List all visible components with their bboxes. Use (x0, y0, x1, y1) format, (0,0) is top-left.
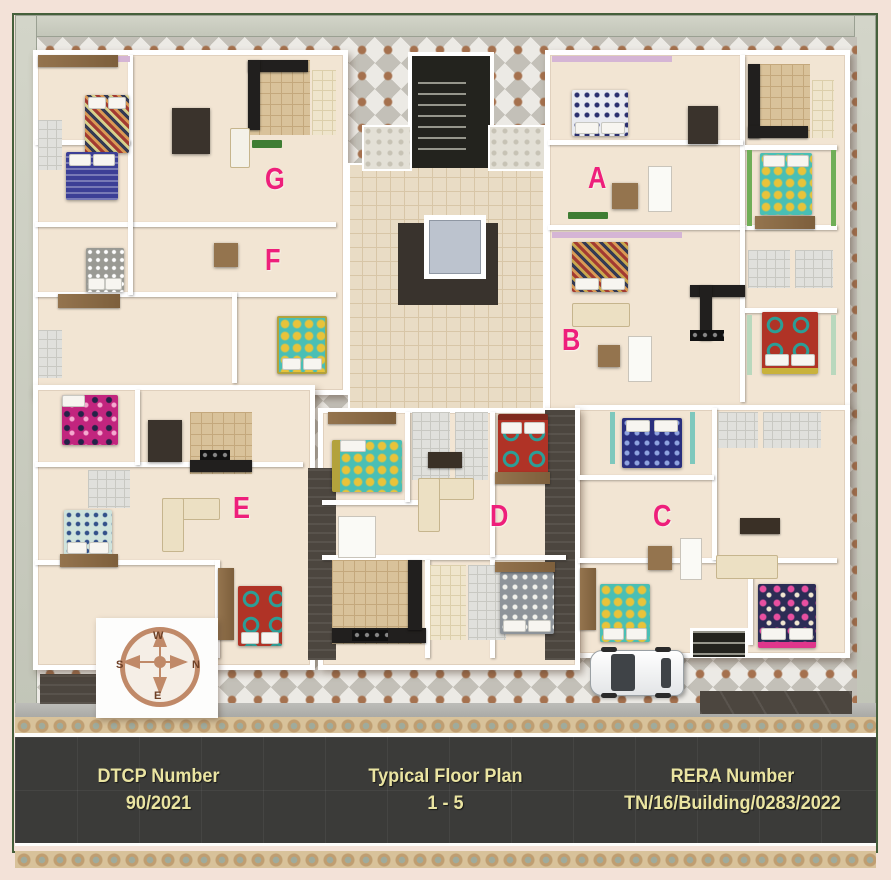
rug-green (252, 140, 282, 148)
compound-wall-right (854, 15, 876, 715)
wardrobe (218, 568, 234, 640)
car-wheel (601, 693, 617, 698)
unit-label-b: B (562, 322, 580, 358)
wardrobe (495, 562, 555, 572)
accent-wall (552, 232, 682, 238)
unit-label-g: G (265, 161, 285, 197)
sofa (572, 303, 630, 327)
stair-side-wall-left (362, 125, 412, 171)
car-wheel (655, 693, 671, 698)
bed-red-zigzag (85, 95, 129, 153)
wardrobe (580, 568, 596, 630)
rera-label: RERA Number (596, 763, 869, 790)
wall (745, 145, 837, 150)
bathroom (38, 330, 62, 378)
compass-arm-w (122, 655, 140, 669)
compass-label-east: E (154, 690, 161, 702)
bed-teal-yellow (277, 316, 327, 374)
dtcp-value: 90/2021 (22, 790, 295, 817)
wall (405, 412, 410, 502)
bathroom (763, 412, 821, 448)
car-windshield (611, 654, 635, 691)
accent-wall-green (747, 150, 752, 226)
kitchen-counter (408, 560, 422, 630)
wall (135, 390, 140, 465)
compound-wall-top (15, 15, 876, 37)
wall (578, 475, 714, 480)
bed-navy (622, 418, 682, 468)
kitchen-counter (190, 460, 252, 472)
accent-wall (831, 315, 836, 375)
bed-pink-floral (62, 395, 118, 445)
wall (128, 55, 133, 295)
unit-label-e: E (233, 490, 250, 526)
bed-pink-floral (758, 584, 816, 648)
bed-red-zigzag (572, 242, 628, 292)
plan-title-block: Typical Floor Plan 1 - 5 (309, 763, 582, 817)
car-rear-window (661, 658, 671, 688)
dtcp-label: DTCP Number (22, 763, 295, 790)
divider-line-bottom (15, 843, 876, 846)
unit-label-d: D (490, 498, 508, 534)
bathroom (748, 250, 790, 288)
bed-gray (500, 572, 554, 634)
kitchen-counter (690, 285, 745, 297)
unit-label-c: C (653, 498, 671, 534)
stove (200, 450, 230, 460)
bed-white-navy (572, 90, 628, 136)
accent-wall-green (831, 150, 836, 226)
car (590, 650, 684, 696)
kitchen-counter (748, 126, 808, 138)
tv-unit (740, 518, 780, 534)
walkway-strip-top (15, 717, 876, 734)
plan-title: Typical Floor Plan (309, 763, 582, 790)
stair-side-wall-right (488, 125, 546, 171)
cabinet-white (628, 336, 652, 382)
wall (740, 228, 745, 402)
bed-red-medallion (238, 586, 282, 646)
bed-teal-yellow (332, 440, 402, 492)
entry-steps (690, 628, 748, 657)
dining-table (688, 106, 718, 144)
bathroom (430, 565, 466, 640)
bathroom (88, 470, 130, 508)
unit-label-f: F (265, 242, 281, 278)
compass-rose: W N E S (96, 618, 218, 718)
sofa (716, 555, 778, 579)
wall (578, 558, 837, 563)
wall (712, 408, 717, 560)
dining-table (148, 420, 182, 462)
walkway-strip-bottom (15, 851, 876, 868)
rera-value: TN/16/Building/0283/2022 (596, 790, 869, 817)
wall (232, 292, 237, 383)
coffee-table (648, 546, 672, 570)
balcony (312, 70, 336, 135)
compass-arm-e (170, 655, 188, 669)
cabinet-white (648, 166, 672, 212)
desk (60, 554, 118, 567)
car-wheel (601, 647, 617, 652)
bed-gray (86, 248, 124, 292)
bed-blue (66, 152, 118, 200)
bed-teal-yellow (600, 584, 650, 642)
wall (490, 412, 495, 557)
accent-wall (747, 315, 752, 375)
rug-green (568, 212, 608, 219)
info-banner: DTCP Number 90/2021 Typical Floor Plan 1… (15, 737, 876, 843)
bathroom (38, 120, 62, 170)
desk (755, 216, 815, 229)
bed-lightblue (64, 510, 112, 556)
bed-teal-yellow (760, 153, 812, 215)
compass-label-west: W (153, 630, 163, 642)
accent-wall (690, 412, 695, 464)
wardrobe (38, 55, 118, 67)
coffee-table (598, 345, 620, 367)
desk (495, 472, 550, 484)
bathroom (412, 412, 450, 480)
elevator (424, 215, 486, 279)
wall (35, 222, 336, 227)
bathroom (455, 412, 488, 480)
desk (58, 294, 120, 308)
stove (690, 330, 724, 341)
kitchen-counter (248, 60, 260, 130)
plan-floors: 1 - 5 (309, 790, 582, 817)
dining-table (172, 108, 210, 154)
bed-red-medallion (762, 312, 818, 374)
coffee-table (214, 243, 238, 267)
dining-table-white (338, 516, 376, 558)
seat (230, 128, 250, 168)
cabinet-white (680, 538, 702, 580)
unit-label-a: A (588, 160, 606, 196)
car-wheel (655, 647, 671, 652)
coffee-table (612, 183, 638, 209)
dtcp-block: DTCP Number 90/2021 (22, 763, 295, 817)
bed-red-medallion (498, 414, 548, 476)
tv-unit (428, 452, 462, 468)
compass-label-south: S (116, 659, 123, 671)
wall (35, 462, 303, 467)
paving-panel-right (700, 691, 852, 714)
sofa (162, 498, 184, 552)
rera-block: RERA Number TN/16/Building/0283/2022 (596, 763, 869, 817)
balcony (812, 80, 834, 138)
bathroom (718, 412, 758, 448)
stair-steps (418, 82, 466, 158)
accent-wall (552, 56, 672, 62)
compass-center (154, 656, 166, 668)
wardrobe (328, 412, 396, 424)
bathroom (795, 250, 833, 288)
floor-plan-scene: A B C D E F G W N E S DTCP Number (0, 0, 891, 880)
compass-label-north: N (192, 659, 200, 671)
stove (352, 630, 388, 641)
sofa (418, 478, 440, 532)
accent-wall (610, 412, 615, 464)
paving-panel-left (40, 674, 98, 704)
